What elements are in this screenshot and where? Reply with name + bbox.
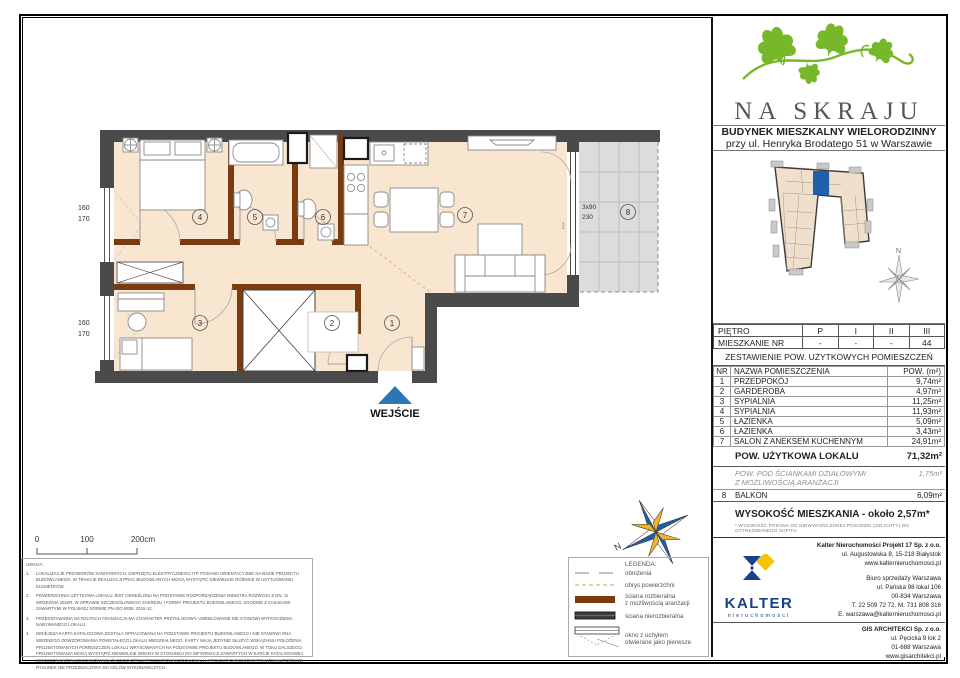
- total-label: POW. UŻYTKOWA LOKALU: [735, 451, 859, 462]
- floor-label: PIĘTRO: [714, 325, 803, 337]
- svg-text:2: 2: [330, 319, 335, 328]
- total-area-row: POW. UŻYTKOWA LOKALU 71,32m²: [713, 447, 945, 467]
- developer-website[interactable]: www.kalternieruchomosci.pl: [801, 560, 941, 569]
- fixed-wall-swatch: [573, 611, 625, 622]
- hall-furniture: [412, 347, 424, 370]
- entrance-opening: [378, 371, 412, 383]
- kalter-brand-sub: nieruchomości: [717, 613, 801, 619]
- apt-label: MIESZKANIE NR: [714, 337, 803, 349]
- note-4: NINIEJSZA KARTA KATALOGOWA ZOSTAŁA OPRAC…: [36, 631, 308, 671]
- table-row: 4SYPIALNIA11,93m²: [714, 407, 945, 417]
- svg-text:8: 8: [626, 208, 631, 217]
- floor-3: III: [909, 325, 945, 337]
- col-nr: NR: [714, 367, 731, 377]
- floor-1: I: [838, 325, 874, 337]
- area-table-title: ZESTAWIENIE POW. UŻYTKOWYCH POMIESZCZEŃ: [713, 349, 945, 366]
- svg-text:160: 160: [78, 205, 90, 212]
- svg-text:200cm: 200cm: [131, 535, 155, 544]
- building-type: BUDYNEK MIESZKALNY WIELORODZINNY: [713, 126, 945, 138]
- svg-text:4: 4: [198, 213, 203, 222]
- developer-email[interactable]: E. warszawa@kalternieruchomosci.pl: [801, 611, 941, 620]
- apartment-height: WYSOKOŚĆ MIESZKANIA - około 2,57m*: [735, 509, 941, 520]
- balcony-row: 8 BALKON 6,09m²: [713, 490, 945, 502]
- area-table: NR NAZWA POMIESZCZENIA POW. (m²) 1PRZEDP…: [713, 366, 945, 447]
- built-in-closet: [243, 290, 315, 371]
- garderoba-furniture: [308, 312, 358, 352]
- legend-item-label: okno z uchyłem: [625, 632, 668, 639]
- site-plan: N: [713, 151, 945, 324]
- entrance-label: WEJŚCIE: [370, 407, 420, 420]
- floor-p: P: [803, 325, 839, 337]
- height-info: WYSOKOŚĆ MIESZKANIA - około 2,57m* * WYS…: [713, 502, 945, 537]
- svg-text:7: 7: [463, 211, 468, 220]
- architect-website[interactable]: www.gisarchitekci.pl: [713, 653, 941, 662]
- svg-text:0: 0: [35, 535, 40, 544]
- table-row: 2GARDEROBA4,97m²: [714, 387, 945, 397]
- catalog-card-sheet: 1 2 3 4 5 6 7 8 160 170 160 170 3x90 230…: [0, 0, 960, 678]
- note-3: PRZEDSTAWIONA NA RZUTACH ARANŻACJA MA CH…: [36, 616, 308, 629]
- architect-block: GIS ARCHITEKCI Sp. z o.o. ul. Pęcicka 9 …: [713, 622, 945, 664]
- legend-item-label: ściana nierozbieralna: [625, 613, 683, 620]
- notes-block: UWAGA: 1.LOKALIZACJE PRZYBORÓW SANITARNY…: [21, 558, 313, 657]
- svg-text:170: 170: [78, 331, 90, 338]
- svg-text:230: 230: [582, 214, 593, 221]
- partition-area: 1,75m²: [919, 469, 942, 487]
- height-footnote: * WYSOKOŚĆ PODANA OD NIEWYKOŃCZONEJ POSA…: [735, 523, 941, 533]
- svg-text:170: 170: [78, 216, 90, 223]
- building-street: przy ul. Henryka Brodatego 51 w Warszawi…: [713, 138, 945, 150]
- col-area: POW. (m²): [888, 367, 945, 377]
- project-name: NA SKRAJU: [713, 98, 945, 126]
- legend-title: LEGENDA:: [625, 561, 704, 568]
- svg-text:3: 3: [198, 319, 203, 328]
- removable-wall-swatch: [573, 595, 625, 606]
- legend: LEGENDA: obniżenia obrys powierzchni ści…: [568, 557, 709, 657]
- notes-title: UWAGA:: [26, 562, 308, 569]
- col-name: NAZWA POMIESZCZENIA: [731, 367, 888, 377]
- shaft: [347, 355, 367, 371]
- table-row: 3SYPIALNIA11,25m²: [714, 397, 945, 407]
- floor-2: II: [874, 325, 910, 337]
- developer-block: KALTER nieruchomości Kalter Nieruchomośc…: [713, 537, 945, 622]
- svg-text:100: 100: [80, 535, 94, 544]
- lowered-ceiling-swatch: [573, 570, 625, 578]
- developer-address: Kalter Nieruchomości Projekt 17 Sp. z o.…: [801, 542, 941, 620]
- note-1: LOKALIZACJE PRZYBORÓW SANITARNYCH, OSPRZ…: [36, 571, 308, 591]
- project-logo: NA SKRAJU: [713, 17, 945, 126]
- legend-item-label: obniżenia: [625, 570, 652, 577]
- svg-text:5: 5: [253, 213, 258, 222]
- area-outline-swatch: [573, 582, 625, 590]
- site-compass: N: [879, 248, 919, 303]
- info-panel: NA SKRAJU BUDYNEK MIESZKALNY WIELORODZIN…: [711, 17, 945, 657]
- wardrobe-corridor: [117, 262, 183, 283]
- svg-text:3x90: 3x90: [582, 204, 596, 211]
- entrance-marker: WEJŚCIE: [370, 386, 420, 420]
- balcony-label: BALKON: [732, 491, 767, 500]
- compass-n-label: N: [612, 541, 622, 553]
- note-2: POWIERZCHNIA UŻYTKOWA LOKALU JEST OKREŚL…: [36, 593, 308, 613]
- total-area: 71,32m²: [907, 451, 942, 462]
- window-symbol-swatch: [573, 625, 625, 653]
- table-row: 1PRZEDPOKÓJ9,74m²: [714, 377, 945, 387]
- kalter-logo: KALTER nieruchomości: [717, 542, 801, 620]
- svg-text:1: 1: [390, 319, 395, 328]
- floor-table: PIĘTRO P I II III MIESZKANIE NR - - - 44: [713, 324, 945, 349]
- svg-text:6: 6: [321, 213, 326, 222]
- floor-plan: 1 2 3 4 5 6 7 8 160 170 160 170 3x90 230…: [20, 14, 710, 559]
- ivy-logo-graphic: [713, 17, 945, 91]
- table-row: 6ŁAZIENKA3,43m²: [714, 427, 945, 437]
- table-row: 7SALON Z ANEKSEM KUCHENNYM24,91m²: [714, 437, 945, 447]
- svg-text:N: N: [896, 248, 901, 255]
- building-address: BUDYNEK MIESZKALNY WIELORODZINNY przy ul…: [713, 126, 945, 151]
- balcony-area: 6,09m²: [917, 491, 942, 500]
- legend-item-label: ściana rozbieralna: [625, 593, 675, 600]
- apt-number: 44: [909, 337, 945, 349]
- svg-text:FIX: FIX: [561, 222, 566, 229]
- legend-item-label: obrys powierzchni: [625, 582, 675, 589]
- highlighted-unit: [813, 171, 829, 195]
- table-row: 5ŁAZIENKA5,09m²: [714, 417, 945, 427]
- partition-area-row: POW. POD ŚCIANKAMI DZIAŁOWYMIZ MOŻLIWOŚC…: [713, 467, 945, 490]
- svg-text:160: 160: [78, 320, 90, 327]
- kalter-brand: KALTER: [717, 595, 801, 612]
- kalter-logo-icon: [737, 554, 781, 588]
- scale-bar: 0 100 200cm: [35, 535, 156, 554]
